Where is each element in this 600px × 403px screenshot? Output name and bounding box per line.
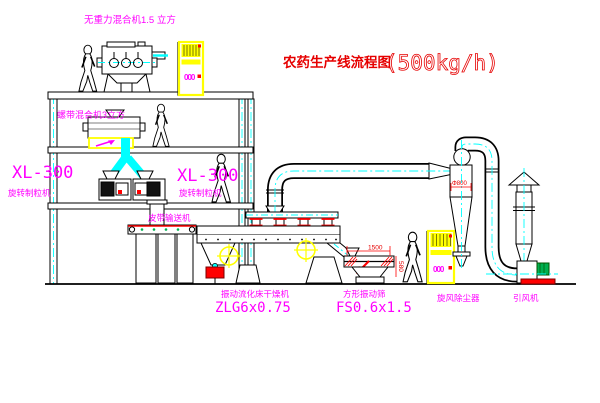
- indicator-light: [198, 45, 201, 48]
- label-granulator-model-left: XL-300: [12, 163, 73, 183]
- label-cyclone: 旋风除尘器: [437, 293, 480, 303]
- person-ground-floor: [403, 232, 422, 282]
- floor-slab-middle: [48, 147, 253, 153]
- process-flow-diagram: 000: [0, 0, 600, 403]
- label-dryer-name: 振动流化床干燥机: [221, 289, 290, 299]
- label-sieve-name: 方形振动筛: [343, 289, 386, 299]
- control-cabinet-ground: 000: [427, 231, 454, 283]
- person-top-floor: [79, 45, 97, 91]
- label-granulator-model-mid: XL-300: [177, 166, 238, 186]
- floor-slab-top: [48, 92, 253, 99]
- indicator-light: [449, 266, 453, 270]
- cabinet-top-display: 000: [184, 73, 196, 82]
- belt-conveyor-drawing: [128, 225, 196, 234]
- vibrating-sieve-drawing: 1500 580: [344, 245, 404, 284]
- cabinet-ground-display: 000: [433, 265, 445, 274]
- label-dryer-model: ZLG6x0.75: [215, 300, 291, 316]
- person-second-floor: [153, 104, 169, 146]
- cyclone-diameter-dim: Φ800: [452, 181, 467, 187]
- label-no-gravity-mixer: 无重力混合机1.5 立方: [84, 14, 176, 26]
- granulator-left-drawing: [99, 171, 131, 200]
- diagram-canvas: 000: [0, 0, 600, 403]
- duct-dryer-to-cyclone: [266, 163, 452, 214]
- diagram-title-capacity: (500kg/h): [385, 51, 499, 75]
- control-cabinet-top: 000: [178, 42, 203, 95]
- storage-bins: [136, 234, 193, 283]
- label-belt-conveyor: 皮带输送机: [148, 213, 191, 223]
- label-ribbon-mixer: 螺带混合机3立方: [57, 109, 125, 120]
- diagram-title: 农药生产线流程图: [282, 54, 391, 70]
- fluid-bed-dryer-drawing: [197, 212, 357, 284]
- label-fan: 引风机: [513, 293, 539, 303]
- indicator-light: [449, 235, 452, 238]
- label-granulator-name-left: 旋转制粒机: [8, 188, 51, 198]
- sieve-height-dim: 580: [397, 261, 404, 272]
- label-sieve-model: FS0.6x1.5: [336, 300, 412, 316]
- sieve-length-dim: 1500: [368, 245, 383, 252]
- no-gravity-mixer-drawing: [97, 42, 168, 92]
- label-granulator-name-mid: 旋转制粒机: [179, 188, 222, 198]
- indicator-light: [198, 75, 202, 79]
